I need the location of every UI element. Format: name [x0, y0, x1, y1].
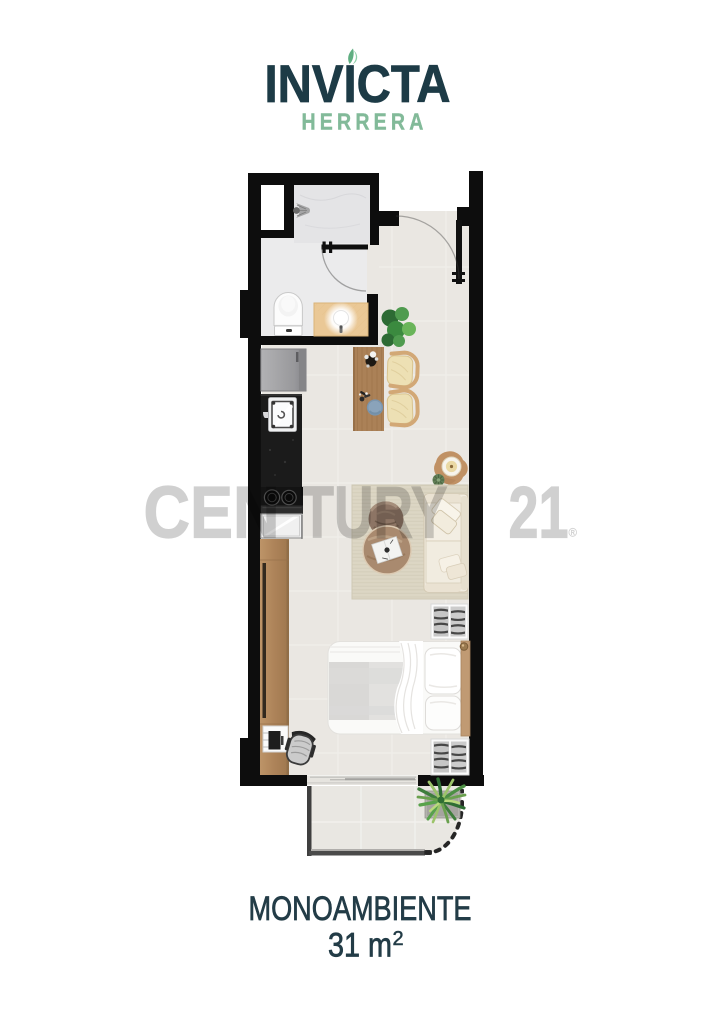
svg-text:TURY: TURY — [301, 473, 448, 554]
svg-text:®: ® — [569, 528, 578, 540]
svg-text:21: 21 — [509, 473, 569, 554]
svg-text:CEN: CEN — [144, 473, 280, 554]
